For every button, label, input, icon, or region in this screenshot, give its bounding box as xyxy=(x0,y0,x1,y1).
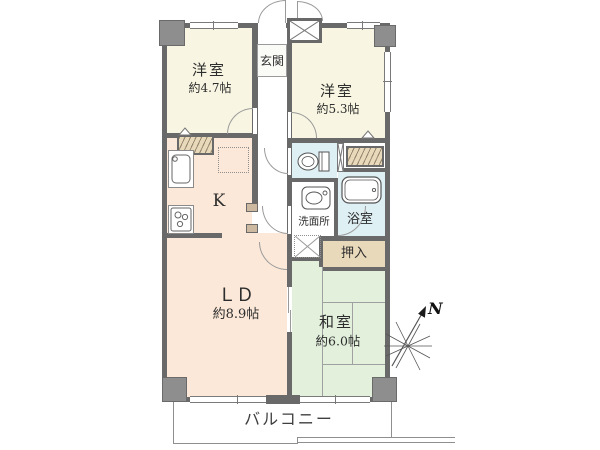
entrance-door-arc xyxy=(258,0,286,23)
balcony-outline xyxy=(173,402,174,444)
room-size-living-dining: 約8.9帖 xyxy=(213,307,260,323)
window xyxy=(384,52,391,112)
door-jamb xyxy=(246,224,258,233)
compass-label: N xyxy=(427,299,444,318)
window-tick xyxy=(362,21,363,30)
meter-box-x-icon xyxy=(287,18,322,43)
door-jamb xyxy=(246,203,258,212)
vent-triangle xyxy=(178,127,192,136)
room-size-japanese: 約6.0帖 xyxy=(316,334,361,349)
room-label-living-dining: ＬＤ xyxy=(218,285,254,307)
room-label-kitchen: K xyxy=(213,191,226,211)
balcony-outline xyxy=(173,443,298,444)
wall xyxy=(319,236,390,241)
balcony-outline xyxy=(391,402,392,438)
wall xyxy=(162,23,167,402)
washbasin-icon xyxy=(301,186,331,210)
tatami-line xyxy=(322,364,385,365)
room-label-bathroom: 浴室 xyxy=(347,212,373,228)
door-opening xyxy=(288,148,291,175)
door-opening xyxy=(253,108,257,134)
kitchen-counter xyxy=(168,150,194,188)
window xyxy=(190,22,238,29)
room-label-japanese: 和室 xyxy=(319,313,353,331)
balcony-outline xyxy=(297,437,455,438)
pillar xyxy=(159,20,185,46)
wall xyxy=(252,138,258,203)
closet-hatch xyxy=(346,146,384,167)
wall xyxy=(323,267,390,271)
pipe-space-icon xyxy=(337,143,344,172)
vent-triangle xyxy=(361,130,375,139)
wall xyxy=(344,168,390,172)
bathtub-icon xyxy=(341,176,382,204)
wall xyxy=(292,178,338,182)
sliding-door-leaf xyxy=(290,310,291,332)
tatami-line xyxy=(322,302,385,303)
window-tick xyxy=(383,81,392,82)
room-label-balcony: バルコニー xyxy=(244,409,334,428)
room-size-western-right: 約5.3帖 xyxy=(316,102,359,116)
sliding-door-leaf xyxy=(288,287,289,313)
toilet-icon xyxy=(297,150,331,173)
window-tick xyxy=(335,395,336,404)
pillar xyxy=(162,377,187,402)
stove-icon xyxy=(169,206,193,233)
window xyxy=(190,396,268,403)
wall-stub xyxy=(266,395,300,404)
room-label-western-left: 洋室 xyxy=(192,61,226,79)
room-label-western-right: 洋室 xyxy=(320,82,354,100)
door-opening xyxy=(288,206,291,234)
washing-machine-space-icon xyxy=(294,235,321,258)
pillar xyxy=(374,25,396,47)
floor-plan: N 玄関 洋室 約4.7帖 洋室 約5.3帖 K 洗面所 浴室 押入 ＬＤ 約8… xyxy=(0,0,600,450)
balcony-outline xyxy=(297,442,455,443)
room-label-closet: 押入 xyxy=(341,246,367,262)
room-label-genkan: 玄関 xyxy=(260,54,284,68)
refrigerator-space-dashed xyxy=(218,147,249,173)
room-size-western-left: 約4.7帖 xyxy=(188,81,231,95)
stove-unit xyxy=(168,205,194,234)
room-label-washroom: 洗面所 xyxy=(298,216,330,229)
compass-north-arrow: N xyxy=(380,292,460,382)
window-tick xyxy=(237,395,238,404)
window-tick xyxy=(213,21,214,30)
kitchen-sink-icon xyxy=(169,151,193,187)
door-opening xyxy=(258,23,286,28)
